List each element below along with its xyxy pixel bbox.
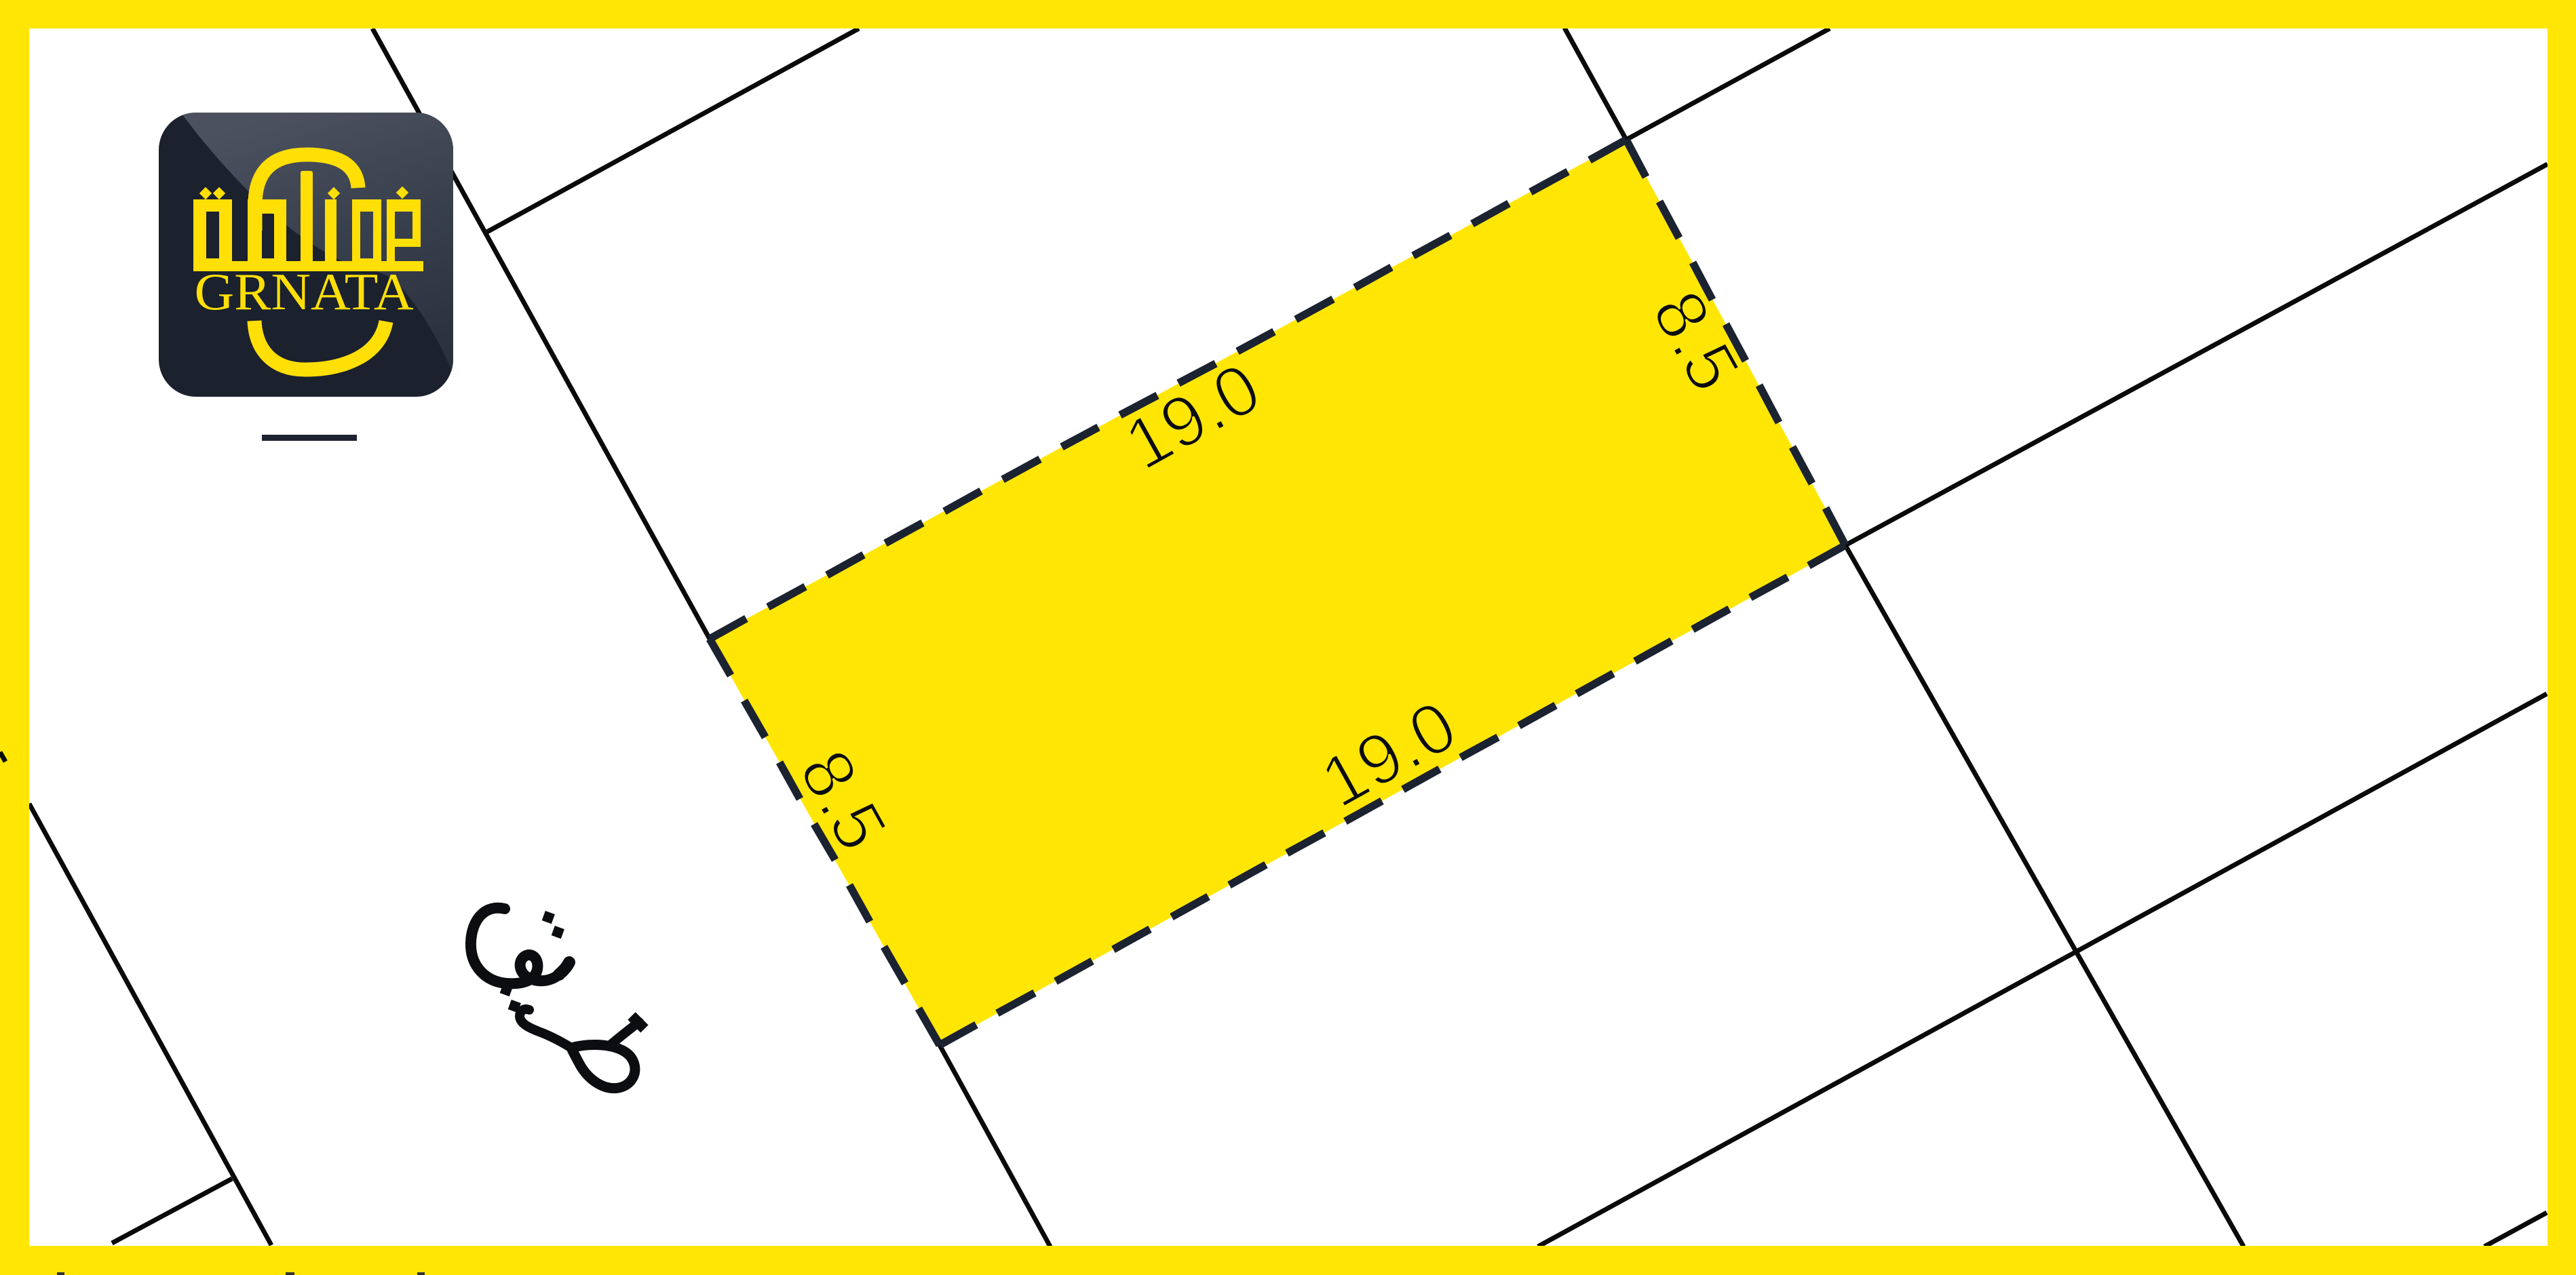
svg-text:GRNATA: GRNATA — [195, 262, 414, 321]
